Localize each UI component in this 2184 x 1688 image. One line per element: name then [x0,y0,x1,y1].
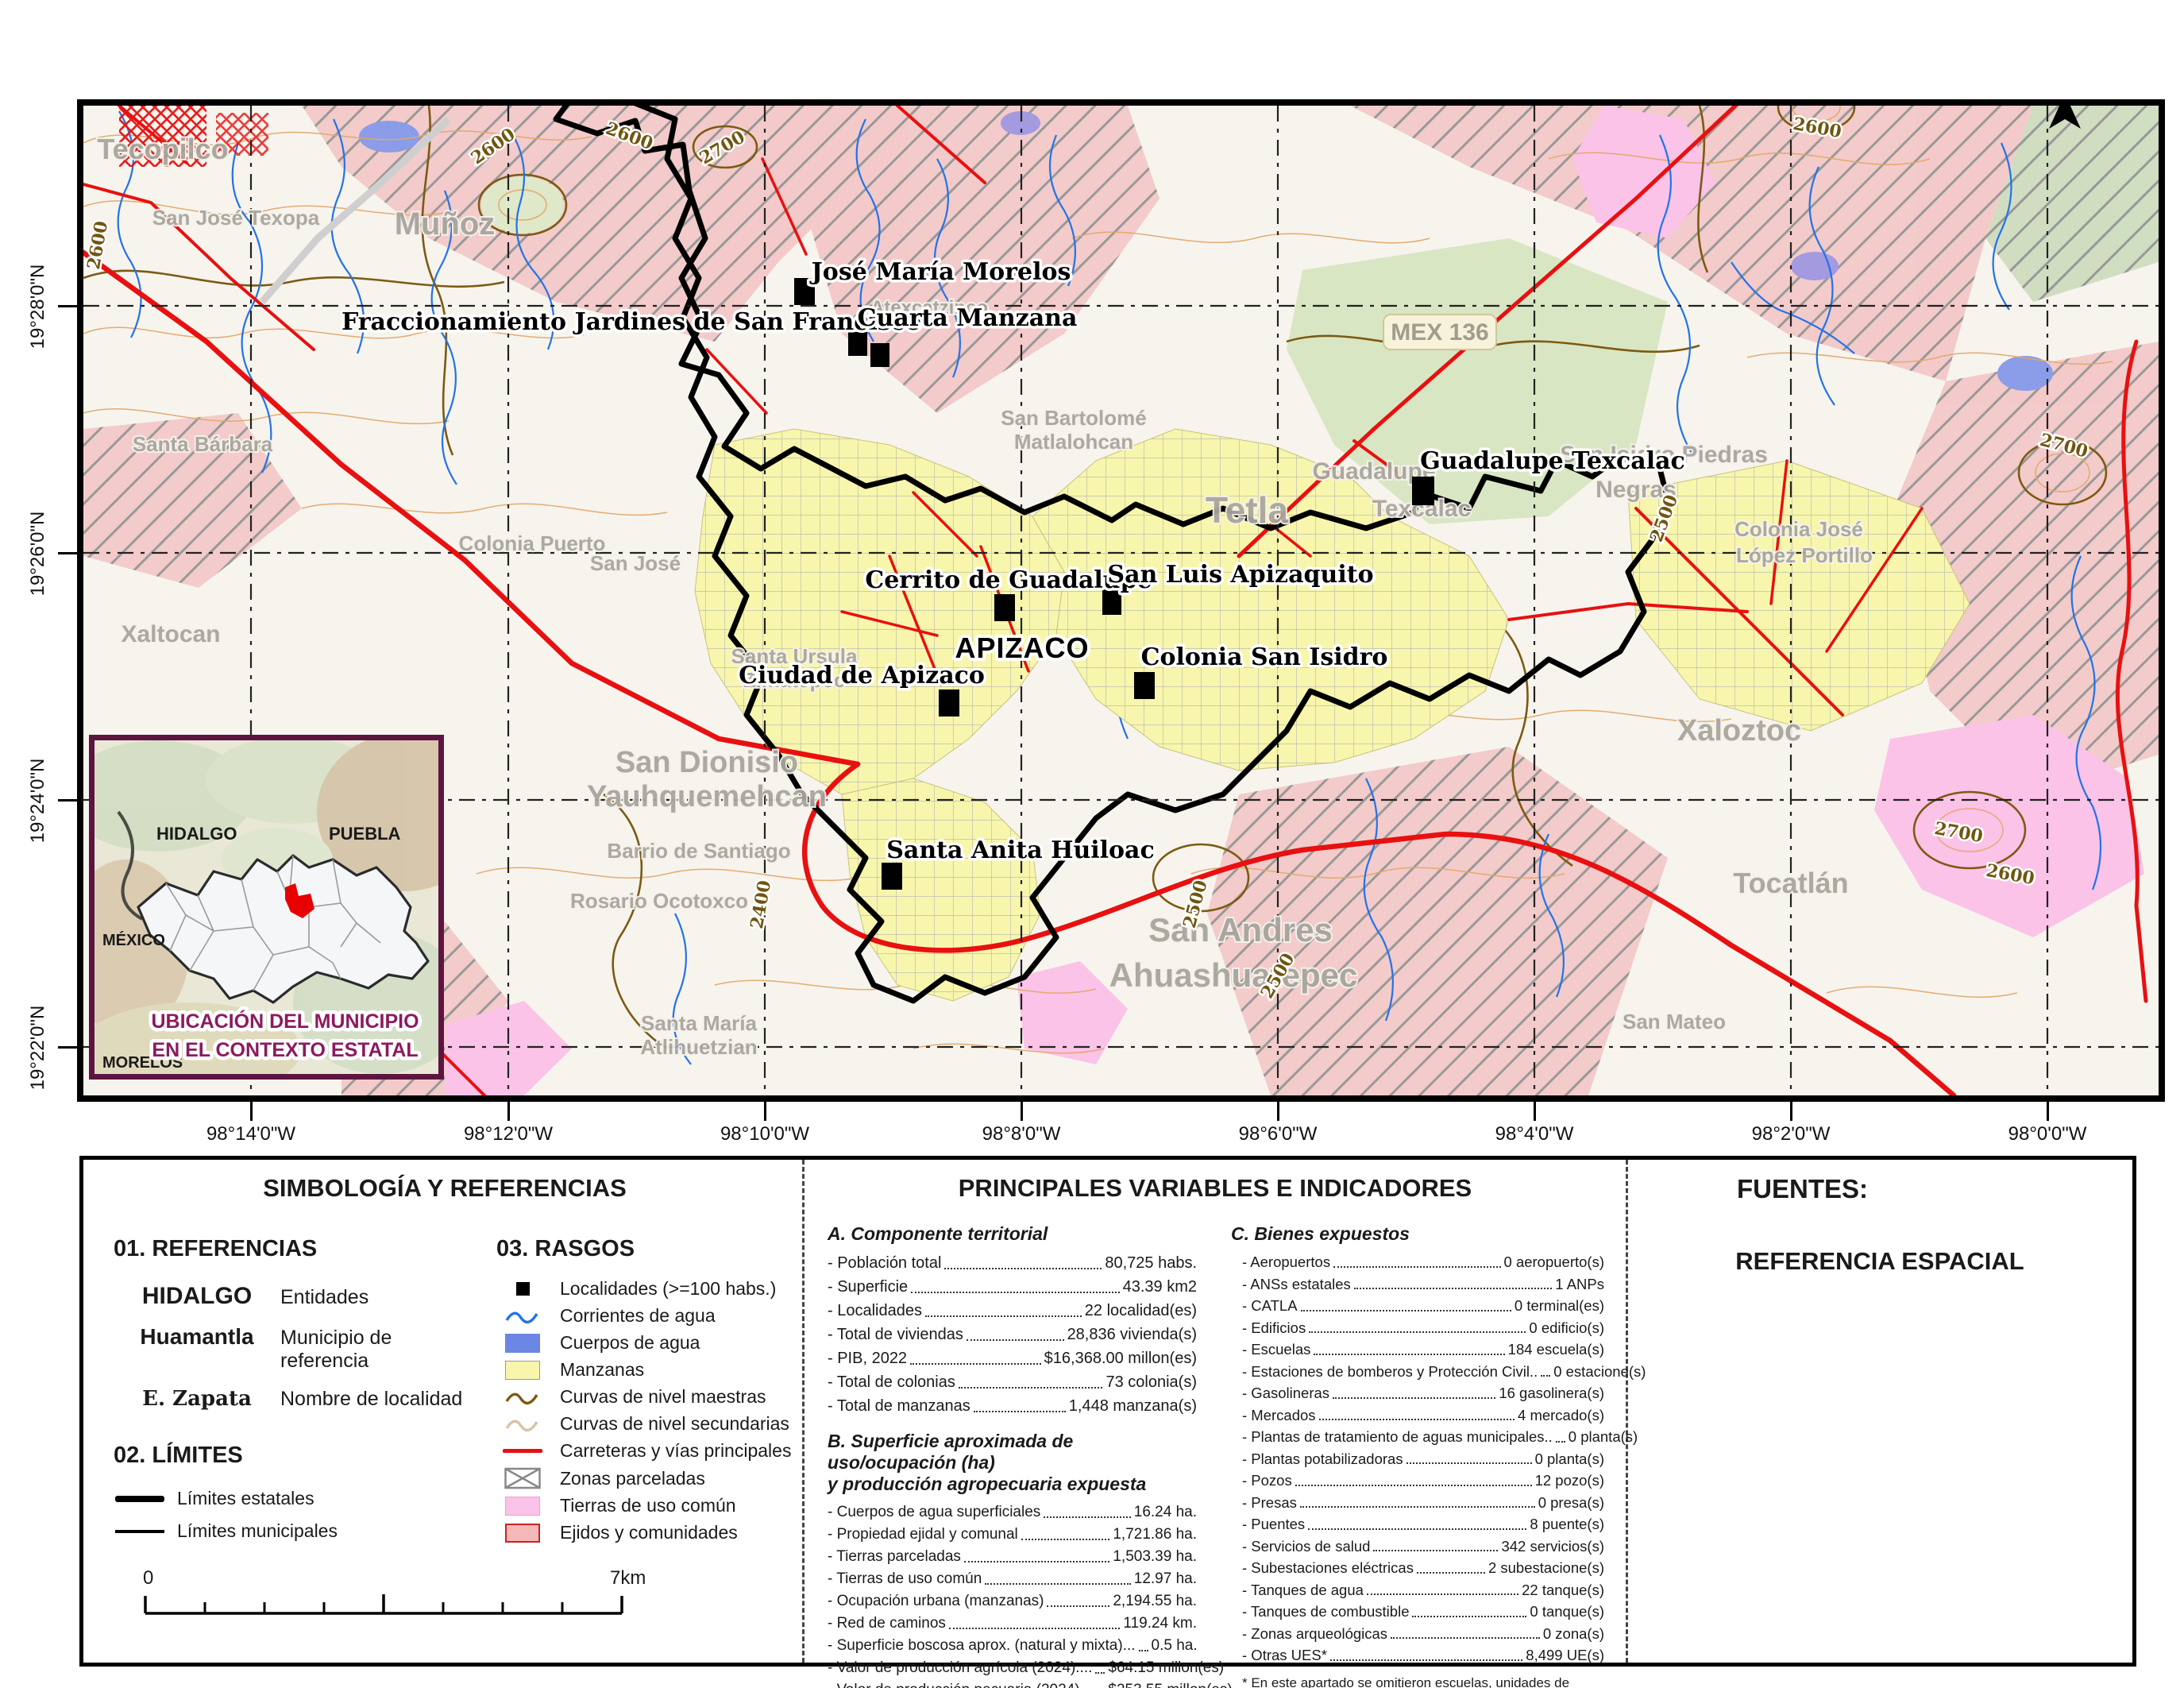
indicator-value: 0 presa(s) [1538,1492,1604,1514]
leader-dots [985,1583,1130,1585]
manzanas-swatch-icon [496,1361,549,1380]
indicator-label: - Superficie [828,1275,908,1299]
indicator-row: - Ocupación urbana (manzanas) 2,194.55 h… [828,1590,1197,1613]
reference-entry: Huamantla Municipio de referencia [114,1324,463,1373]
rasgo-entry: Curvas de nivel secundarias [496,1413,798,1435]
place-label: Colonia Puerto [459,531,606,555]
indicator-value: 4 mercado(s) [1518,1404,1604,1427]
indicator-row: - Valor de producción pecuaria (2024)...… [828,1679,1197,1688]
reference-entry: HIDALGO Entidades [114,1283,463,1310]
rasgo-label: Localidades (>=100 habs.) [560,1278,776,1300]
indicator-label: - CATLA [1242,1295,1298,1317]
indicator-label: - Tierras parceladas [828,1546,961,1568]
indicators-a-heading: A. Componente territorial [828,1223,1197,1245]
leader-dots [1330,1659,1522,1661]
indicator-row: - Aeropuertos 0 aeropuerto(s) [1231,1251,1604,1273]
reference-label: Entidades [280,1286,369,1309]
indicator-label: - ANSs estatales [1242,1273,1351,1296]
inset-state-mexico: MÉXICO [102,931,165,949]
place-label: López Portillo [1736,543,1873,567]
indicator-value: $16,368.00 millon(es) [1044,1346,1197,1370]
rasgo-entry: Curvas de nivel maestras [496,1386,798,1408]
place-label: Tocatlán [1733,867,1848,899]
place-label: Rosario Ocotoxco [570,889,748,913]
rasgo-label: Tierras de uso común [560,1495,736,1516]
indicator-value: 8 puente(s) [1530,1513,1604,1535]
limit-label: Límites estatales [177,1488,314,1509]
inset-state-puebla: PUEBLA [329,824,401,844]
contour-master-icon [496,1387,549,1408]
references-heading: 01. REFERENCIAS [114,1236,463,1262]
rasgo-entry: Zonas parceladas [496,1467,798,1489]
place-label: San Bartolomé [1001,406,1147,430]
indicator-label: - Valor de producción pecuaria (2024)... [828,1679,1092,1688]
indicator-value: 184 escuela(s) [1508,1338,1604,1361]
indicator-value: 0 aeropuerto(s) [1504,1251,1604,1273]
indicator-value: $64.15 millon(es) [1108,1657,1224,1679]
rasgo-label: Corrientes de agua [560,1305,716,1327]
indicators-b-list: - Cuerpos de agua superficiales 16.24 ha… [828,1501,1197,1688]
indicator-label: - Subestaciones eléctricas [1242,1557,1414,1579]
ejido-swatch-icon [496,1524,549,1543]
indicator-value: 8,499 UE(s) [1526,1644,1604,1667]
panel-divider-2 [1626,1160,1628,1663]
rasgo-label: Manzanas [560,1359,644,1381]
leader-dots [949,1628,1121,1629]
indicator-row: - Tierras parceladas 1,503.39 ha. [828,1546,1197,1568]
indicator-value: 0 planta(s) [1569,1426,1638,1448]
lon-tick-label: 98°12'0"W [441,1123,576,1145]
locality-label: Fraccionamiento Jardines de San Francisc… [341,308,921,336]
indicator-label: - Tanques de combustible [1242,1601,1409,1623]
indicator-row: - Otras UES* 8,499 UE(s) [1231,1644,1604,1667]
scale-bar-end: 7km [610,1567,646,1590]
limit-label: Límites municipales [177,1520,338,1542]
indicator-value: 0 estacione(s) [1553,1361,1646,1383]
indicator-row: - Tanques de agua 22 tanque(s) [1231,1579,1604,1601]
indicator-row: - Servicios de salud 342 servicios(s) [1231,1535,1604,1558]
indicator-label: - Otras UES* [1242,1644,1327,1667]
lat-tick-label: 19°26'0"N [27,486,48,621]
indicator-value: 16 gasolinera(s) [1499,1382,1604,1404]
place-label: Atlihuetzian [640,1035,757,1059]
indicator-row: - Total de manzanas 1,448 manzana(s) [828,1394,1197,1418]
indicator-value: 1,721.86 ha. [1113,1524,1197,1546]
indicator-value: 73 colonia(s) [1106,1370,1197,1394]
inset-state-hidalgo: HIDALGO [156,824,237,844]
rasgo-label: Cuerpos de agua [560,1332,700,1354]
rasgo-label: Zonas parceladas [560,1468,705,1489]
indicator-row: - Plantas potabilizadoras 0 planta(s) [1231,1448,1604,1470]
lon-tick-label: 98°14'0"W [183,1123,318,1145]
rasgo-label: Ejidos y comunidades [560,1522,738,1543]
indicator-value: 119.24 km. [1123,1613,1197,1635]
reference-entry: E. Zapata Nombre de localidad [114,1387,463,1411]
place-label: San José Texopa [152,206,320,230]
scale-bar-graphic [143,1591,651,1620]
leader-dots [1044,1516,1130,1518]
indicator-label: - Plantas potabilizadoras [1242,1448,1403,1470]
indicator-row: - Puentes 8 puente(s) [1231,1513,1604,1535]
indicator-label: - Edificios [1242,1317,1306,1339]
leader-dots [1412,1616,1526,1617]
leader-dots [1354,1288,1553,1289]
rasgo-entry: Cuerpos de agua [496,1332,798,1354]
leader-dots [1314,1354,1504,1355]
water-swatch-icon [496,1334,549,1353]
indicator-value: 2,194.55 ha. [1113,1590,1197,1613]
leader-dots [1541,1375,1550,1377]
place-label: Tetla [1206,489,1288,531]
indicator-value: 80,725 habs. [1105,1251,1197,1275]
indicator-label: - Tanques de agua [1242,1579,1364,1601]
indicators-b-heading-2: y producción agropecuaria expuesta [828,1474,1197,1495]
rasgo-entry: Carreteras y vías principales [496,1440,798,1462]
place-label: Colonia José [1734,517,1863,541]
highway-shield: MEX 136 [1383,315,1496,350]
leader-dots [964,1561,1109,1562]
common-land-swatch-icon [496,1497,549,1516]
indicator-value: 12 pozo(s) [1535,1470,1604,1492]
indicator-value: 1 ANPs [1555,1273,1604,1296]
indicator-label: - Población total [828,1251,941,1275]
indicator-row: - ANSs estatales 1 ANPs [1231,1273,1604,1296]
locality-label: Guadalupe Texcalac [1420,447,1685,475]
place-label: San José [590,551,681,575]
contour-secondary-icon [496,1414,549,1435]
municipal-limit-line [114,1530,166,1533]
indicator-label: - Pozos [1242,1470,1292,1492]
parcel-swatch-icon [496,1467,549,1489]
indicator-row: - Tanques de combustible 0 tanque(s) [1231,1601,1604,1623]
road-line-icon [496,1449,549,1453]
rasgo-label: Curvas de nivel secundarias [560,1413,789,1435]
indicator-row: - CATLA 0 terminal(es) [1231,1295,1604,1317]
rasgo-entry: Corrientes de agua [496,1305,798,1327]
indicator-value: 0 edificio(s) [1529,1317,1604,1339]
locality-label: San Luis Apizaquito [1107,561,1373,589]
indicator-label: - Localidades [828,1299,922,1323]
leader-dots [1139,1650,1148,1651]
indicator-label: - Escuelas [1242,1338,1310,1361]
indicator-label: - Servicios de salud [1242,1535,1370,1558]
reference-sample: E. Zapata [114,1387,280,1411]
indicator-label: - Presas [1242,1492,1297,1514]
indicator-row: - PIB, 2022 $16,368.00 millon(es) [828,1346,1197,1370]
lon-tick-label: 98°0'0"W [1980,1123,2115,1145]
place-label: San Mateo [1623,1010,1726,1033]
sources-section: FUENTES: REFERENCIA ESPACIAL [1642,1174,2118,1298]
leader-dots [1333,1397,1495,1399]
leader-dots [925,1315,1082,1317]
indicator-label: - Estaciones de bomberos y Protección Ci… [1242,1361,1538,1383]
indicator-row: - Valor de producción agrícola (2024)...… [828,1657,1197,1679]
indicator-label: - Propiedad ejidal y comunal [828,1524,1018,1546]
place-label: Xaloztoc [1677,714,1801,747]
indicator-row: - Superficie 43.39 km2 [828,1275,1197,1299]
indicator-label: - Zonas arqueológicas [1242,1623,1387,1645]
spatial-reference-title: REFERENCIA ESPACIAL [1642,1247,2118,1276]
place-label: Yauhquemehcan [587,780,827,813]
indicators-section: PRINCIPALES VARIABLES E INDICADORES A. C… [818,1174,1612,1203]
leader-dots [944,1268,1102,1269]
indicators-title: PRINCIPALES VARIABLES E INDICADORES [818,1174,1612,1203]
stream-line-icon [496,1306,549,1327]
leader-dots [1406,1462,1532,1464]
place-label: Ahuashuatepec [1109,956,1358,994]
indicators-c-list: - Aeropuertos 0 aeropuerto(s) - ANSs est… [1231,1251,1604,1667]
leader-dots [974,1411,1066,1412]
place-label: Xaltocan [121,621,220,647]
reference-sample: Huamantla [114,1324,280,1350]
indicator-label: - Gasolineras [1242,1382,1329,1404]
rasgo-entry: Manzanas [496,1359,798,1381]
indicator-row: - Plantas de tratamiento de aguas munici… [1231,1426,1604,1448]
locality-label: Ciudad de Apizaco [739,662,985,689]
indicator-label: - Aeropuertos [1242,1251,1330,1273]
lon-tick-label: 98°4'0"W [1467,1123,1602,1145]
indicator-value: $253.55 millon(es) [1108,1679,1232,1688]
indicators-a-list: - Población total 80,725 habs. - Superfi… [828,1251,1197,1418]
indicator-row: - Localidades 22 localidad(es) [828,1299,1197,1323]
indicator-value: 0 terminal(es) [1515,1295,1604,1317]
rasgo-entry: Ejidos y comunidades [496,1522,798,1543]
indicator-value: 2 subestacione(s) [1488,1557,1604,1579]
indicator-value: 0 planta(s) [1535,1448,1604,1470]
lat-tick-label: 19°22'0"N [27,980,48,1115]
locality-square-icon [496,1282,549,1296]
rasgo-entry: Localidades (>=100 habs.) [496,1278,798,1300]
indicator-value: 43.39 km2 [1123,1275,1197,1299]
indicator-row: - Mercados 4 mercado(s) [1231,1404,1604,1427]
locality-label: Cuarta Manzana [858,304,1078,332]
indicator-value: 12.97 ha. [1134,1568,1197,1590]
place-label: Tecopilco [97,133,228,165]
indicator-label: - Total de viviendas [828,1323,963,1346]
scale-bar-start: 0 [143,1567,153,1590]
indicators-footnote-1: * En este apartado se omitieron escuelas… [1242,1674,1604,1688]
leader-dots [1367,1593,1518,1595]
state-limit-line [114,1496,166,1502]
lat-tick-label: 19°24'0"N [27,733,48,868]
place-label: Barrio de Santiago [607,839,790,863]
leader-dots [1391,1637,1540,1639]
indicator-row: - Subestaciones eléctricas 2 subestacion… [1231,1557,1604,1579]
indicator-value: 22 tanque(s) [1522,1579,1604,1601]
leader-dots [910,1363,1041,1365]
rasgo-label: Carreteras y vías principales [560,1440,791,1462]
leader-dots [1300,1506,1535,1508]
rasgos-heading: 03. RASGOS [496,1236,798,1262]
indicator-label: - PIB, 2022 [828,1346,907,1370]
map-sheet: MEX 136 Tecopilco San José Texopa Muñoz … [0,0,2184,1688]
indicator-label: - Superficie boscosa aprox. (natural y m… [828,1635,1136,1657]
indicator-label: - Valor de producción agrícola (2024)...… [828,1657,1092,1679]
indicator-row: - Edificios 0 edificio(s) [1231,1317,1604,1339]
indicator-value: 0 zona(s) [1543,1623,1604,1645]
indicator-label: - Plantas de tratamiento de aguas munici… [1242,1426,1553,1448]
municipality-label: APIZACO [955,632,1090,664]
indicator-value: 0 tanque(s) [1530,1601,1604,1623]
reference-label: Nombre de localidad [280,1388,462,1411]
inset-map: HIDALGO PUEBLA MÉXICO MORELOS UBICACIÓN … [89,735,444,1080]
place-label: San Dionisio [615,746,798,779]
lon-tick-label: 98°2'0"W [1723,1123,1858,1145]
indicator-value: 0.5 ha. [1152,1635,1198,1657]
limit-entry: Límites estatales [114,1488,463,1509]
locality-label: Santa Anita Huiloac [886,836,1155,864]
indicator-label: - Mercados [1242,1404,1316,1427]
lat-tick-label: 19°28'0"N [27,239,48,374]
indicator-value: 1,503.39 ha. [1113,1546,1197,1568]
locality-label: José María Morelos [809,258,1071,286]
reference-sample: HIDALGO [114,1283,280,1310]
lon-tick-label: 98°10'0"W [697,1123,832,1145]
indicators-b-heading-1: B. Superficie aproximada de uso/ocupació… [828,1431,1197,1474]
indicator-row: - Escuelas 184 escuela(s) [1231,1338,1604,1361]
limit-entry: Límites municipales [114,1520,463,1542]
legend-panel: SIMBOLOGÍA Y REFERENCIAS 01. REFERENCIAS… [79,1156,2136,1667]
lon-tick-label: 98°8'0"W [954,1123,1089,1145]
indicator-row: - Superficie boscosa aprox. (natural y m… [828,1635,1197,1657]
highway-shield-label: MEX 136 [1391,319,1488,346]
sources-title: FUENTES: [1642,1174,2118,1204]
indicator-value: 16.24 ha. [1134,1501,1197,1524]
indicator-value: 28,836 vivienda(s) [1067,1323,1197,1346]
indicators-c-heading: C. Bienes expuestos [1231,1223,1604,1245]
symbology-title: SIMBOLOGÍA Y REFERENCIAS [99,1174,790,1203]
leader-dots [1021,1539,1110,1540]
leader-dots [911,1292,1119,1293]
indicator-label: - Red de caminos [828,1613,946,1635]
leader-dots [1309,1331,1526,1333]
leader-dots [1047,1605,1109,1607]
leader-dots [959,1387,1103,1389]
indicator-row: - Zonas arqueológicas 0 zona(s) [1231,1623,1604,1645]
inset-caption-line1: UBICACIÓN DEL MUNICIPIO [151,1009,419,1033]
indicator-row: - Tierras de uso común 12.97 ha. [828,1568,1197,1590]
indicator-value: 342 servicios(s) [1501,1535,1604,1558]
indicator-label: - Puentes [1242,1513,1305,1535]
leader-dots [1319,1419,1515,1420]
indicator-label: - Tierras de uso común [828,1568,982,1590]
leader-dots [1373,1550,1498,1551]
indicator-label: - Total de colonias [828,1370,955,1394]
indicator-value: 22 localidad(es) [1085,1299,1197,1323]
indicator-row: - Presas 0 presa(s) [1231,1492,1604,1514]
leader-dots [1417,1572,1485,1574]
rasgo-entry: Tierras de uso común [496,1495,798,1516]
locality-label: Colonia San Isidro [1141,643,1388,671]
indicator-row: - Población total 80,725 habs. [828,1251,1197,1275]
indicator-row: - Total de viviendas 28,836 vivienda(s) [828,1323,1197,1346]
place-label: Santa Bárbara [133,432,273,456]
indicator-row: - Propiedad ejidal y comunal 1,721.86 ha… [828,1524,1197,1546]
indicator-label: - Cuerpos de agua superficiales [828,1501,1040,1524]
leader-dots [1333,1266,1500,1268]
leader-dots [1301,1310,1511,1311]
leader-dots [967,1339,1064,1341]
indicator-row: - Cuerpos de agua superficiales 16.24 ha… [828,1501,1197,1524]
symbology-section: SIMBOLOGÍA Y REFERENCIAS 01. REFERENCIAS… [99,1174,790,1203]
inset-canvas: HIDALGO PUEBLA MÉXICO MORELOS UBICACIÓN … [95,740,438,1074]
indicator-value: 1,448 manzana(s) [1069,1394,1197,1418]
inset-caption-line2: EN EL CONTEXTO ESTATAL [152,1039,418,1061]
place-label: Santa María [641,1011,757,1035]
place-label: Muñoz [395,207,496,241]
panel-divider-1 [802,1160,805,1663]
limits-heading: 02. LÍMITES [114,1443,463,1469]
indicator-row: - Estaciones de bomberos y Protección Ci… [1231,1361,1604,1383]
place-label: San Andres [1148,911,1333,948]
leader-dots [1095,1672,1105,1674]
indicator-row: - Total de colonias 73 colonia(s) [828,1370,1197,1394]
reference-label: Municipio de referencia [280,1327,463,1373]
place-label: Matlalohcan [1014,430,1133,454]
leader-dots [1556,1441,1565,1443]
rasgo-label: Curvas de nivel maestras [560,1386,766,1408]
leader-dots [1308,1528,1526,1530]
indicator-row: - Pozos 12 pozo(s) [1231,1470,1604,1492]
scale-bar: 0 7km [143,1567,651,1623]
indicator-row: - Red de caminos 119.24 km. [828,1613,1197,1635]
indicator-row: - Gasolineras 16 gasolinera(s) [1231,1382,1604,1404]
indicator-label: - Ocupación urbana (manzanas) [828,1590,1044,1613]
indicator-label: - Total de manzanas [828,1394,970,1418]
leader-dots [1295,1485,1532,1486]
lon-tick-label: 98°6'0"W [1210,1123,1345,1145]
